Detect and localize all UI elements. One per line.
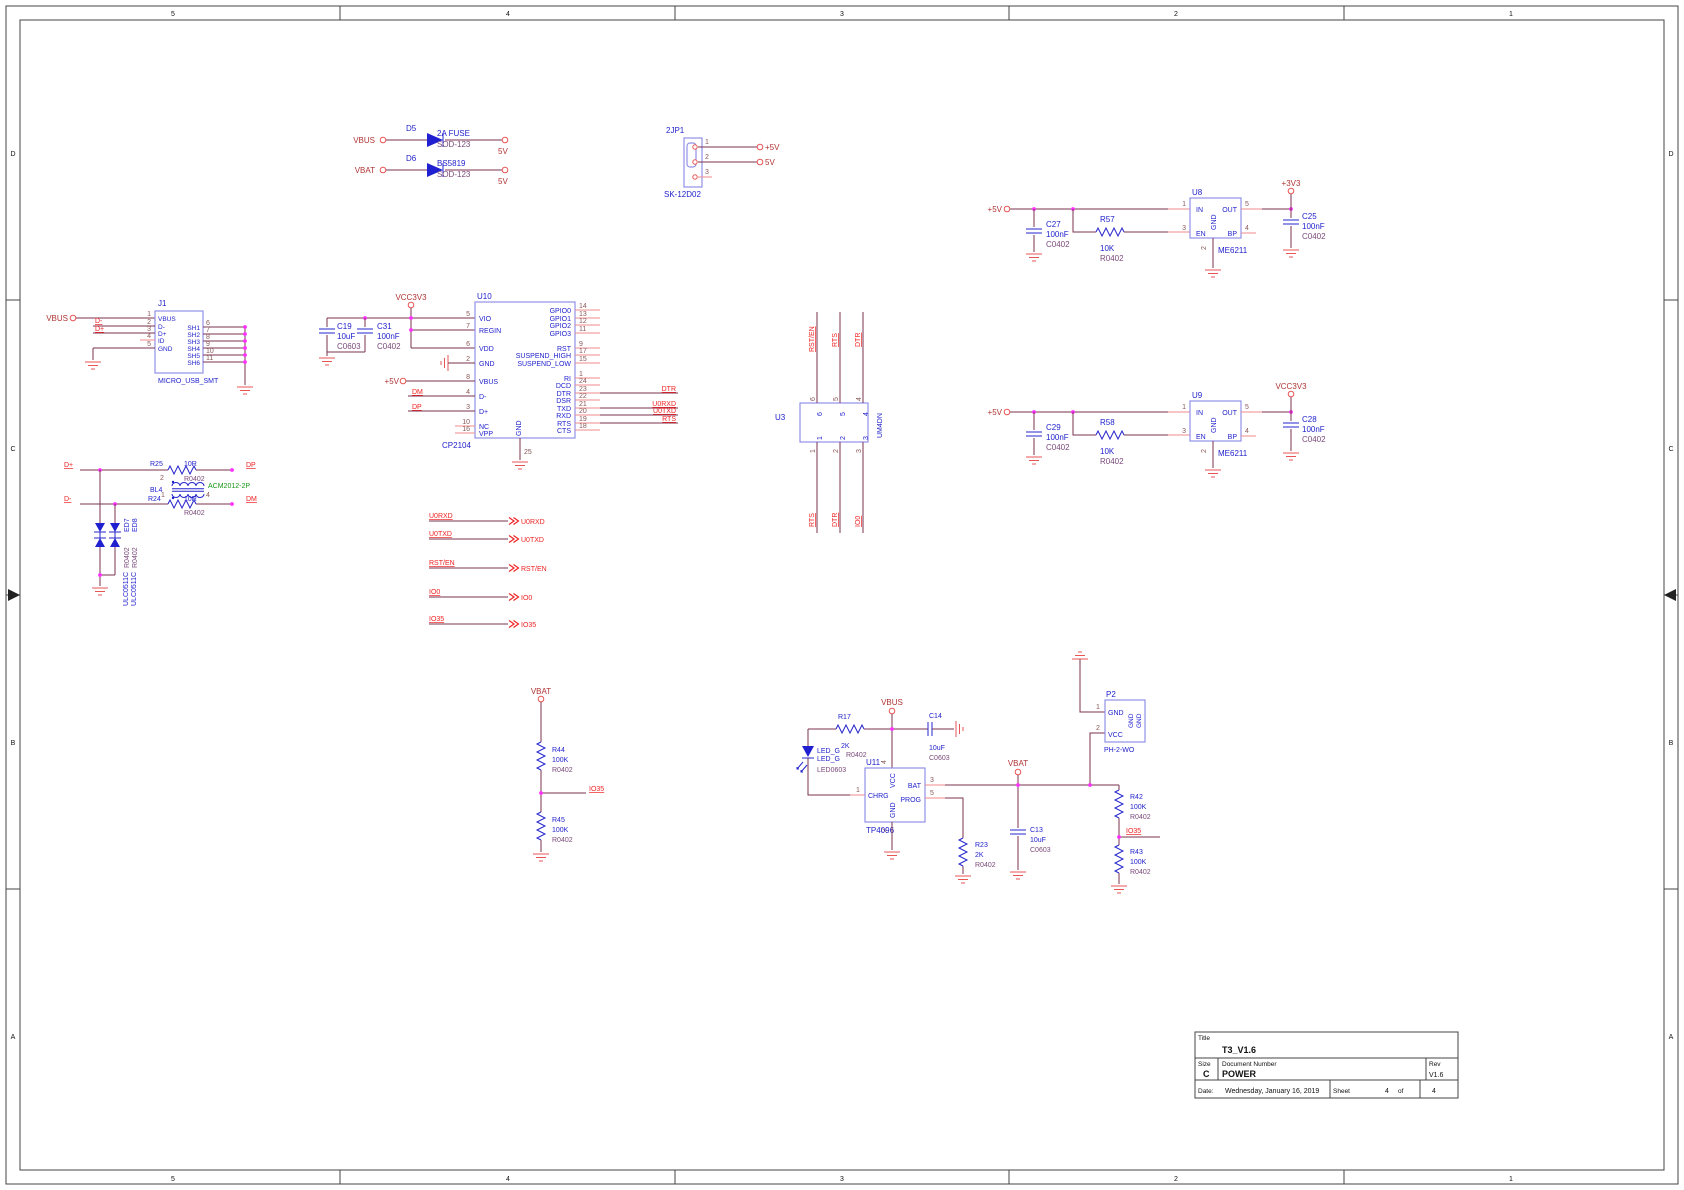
zone-col: 1 <box>1509 11 1513 18</box>
cap-c13 <box>1010 830 1026 834</box>
connector-p2: P2 1 2 GND VCC GND GND PH-2-WO <box>1072 652 1145 787</box>
ed7-footprint: R0402 <box>124 547 131 568</box>
u11-ref: U11 <box>866 758 881 767</box>
ed7-ref: ED7 <box>124 518 131 532</box>
r25-pin-number: 2 <box>160 475 164 482</box>
r58-ref: R58 <box>1100 418 1115 427</box>
led-footprint: LED0603 <box>817 767 846 774</box>
schematic-canvas: 5 4 3 2 1 5 4 3 2 1 D C B A D C B A VBUS… <box>0 0 1684 1190</box>
ed8-ref: ED8 <box>132 518 139 532</box>
u10-pin-name: REGIN <box>479 328 501 335</box>
u8-pin-bp: BP <box>1228 231 1238 238</box>
u3-ref: U3 <box>775 413 786 422</box>
r17-footprint: R0402 <box>846 752 867 759</box>
u10-pin-number: 11 <box>579 326 586 333</box>
u9-pin4-number: 4 <box>1245 428 1249 435</box>
c19-value: 10uF <box>337 332 355 341</box>
u9-pin-bp: BP <box>1228 434 1238 441</box>
resistor-r43 <box>1115 845 1123 873</box>
u3-pin-number: 6 <box>810 397 817 401</box>
u9-pin2-number: 2 <box>1201 449 1208 453</box>
net-label-dminus: D- <box>64 496 72 503</box>
u10-part: CP2104 <box>442 441 471 450</box>
titleblock-doc-label: Document Number <box>1222 1061 1277 1068</box>
u10-pin-number: 24 <box>579 378 587 385</box>
titleblock-date-label: Date: <box>1198 1088 1214 1095</box>
u10-net-vcc3v3: VCC3V3 <box>395 293 427 302</box>
j1-port-vbus: VBUS <box>46 314 68 323</box>
u10-pin-number: 2 <box>466 356 470 363</box>
r45-ref: R45 <box>552 817 565 824</box>
led-ref: LED_G <box>817 748 840 755</box>
net-label-5v: 5V <box>498 177 508 186</box>
title-block: Title T3_V1.6 Size C Document Number POW… <box>1195 1032 1458 1098</box>
u10-pin-name: RI <box>564 376 571 383</box>
schematic-sheet: 5 4 3 2 1 5 4 3 2 1 D C B A D C B A VBUS… <box>0 0 1684 1190</box>
u11-pin5-number: 5 <box>930 790 934 797</box>
d5-value: 2A FUSE <box>437 129 470 138</box>
j1-sh-name: SH1 <box>187 325 200 332</box>
c19-ref: C19 <box>337 322 352 331</box>
bl4-pin1-number: 1 <box>161 492 165 499</box>
net-label-dplus: D+ <box>95 326 104 333</box>
c13-ref: C13 <box>1030 827 1043 834</box>
net-label-rst-en: RST/EN <box>809 326 816 352</box>
u3-pin-name: 3 <box>863 436 870 440</box>
jp1-ref: 2JP1 <box>666 126 685 135</box>
p2-pin-gnd: GND <box>1108 710 1124 717</box>
u10-pin-number: 23 <box>579 386 587 393</box>
u9-pin-out: OUT <box>1222 410 1238 417</box>
net-label-vbat: VBAT <box>1008 759 1028 768</box>
u9-net-in: +5V <box>988 408 1003 417</box>
zone-col: 4 <box>506 1176 510 1183</box>
j1-sh-name: SH4 <box>187 346 200 353</box>
sheet-frame: 5 4 3 2 1 5 4 3 2 1 D C B A D C B A <box>6 6 1678 1184</box>
net-label-dminus: D- <box>95 318 103 325</box>
u10-net-5v: +5V <box>385 377 400 386</box>
u10-pin-name: GND <box>479 361 495 368</box>
p2-footprint: PH-2-WO <box>1104 747 1135 754</box>
net-label-io35: IO35 <box>1126 828 1141 835</box>
u10-pin-name: CTS <box>557 428 571 435</box>
p2-pin-vcc: VCC <box>1108 732 1123 739</box>
u3-part: UM4DN <box>877 413 884 438</box>
net-label-vbat: VBAT <box>355 166 375 175</box>
r24-ref: R24 <box>148 496 161 503</box>
j1-pin-name: D- <box>158 324 165 331</box>
u11-pin-gnd: GND <box>890 802 897 818</box>
resistor-r42 <box>1115 790 1123 818</box>
u8-net-in: +5V <box>988 205 1003 214</box>
u9-pin3-number: 3 <box>1182 428 1186 435</box>
titleblock-rev: V1.6 <box>1429 1072 1444 1079</box>
u11-pin3-number: 3 <box>930 777 934 784</box>
r24-footprint: R0402 <box>184 510 205 517</box>
u10-pin-name: VDD <box>479 346 494 353</box>
frame-left-arrow-icon <box>8 589 20 601</box>
c31-value: 100nF <box>377 332 400 341</box>
u11-pin1-number: 1 <box>856 787 860 794</box>
bl4-pin4-number: 4 <box>206 492 210 499</box>
u8-pin-in: IN <box>1196 207 1203 214</box>
u10-pin-number: 7 <box>466 323 470 330</box>
p2-pin1-number: 1 <box>1096 704 1100 711</box>
offpage-ref: RST/EN <box>521 566 547 573</box>
jp1-footprint: SK-12D02 <box>664 190 701 199</box>
net-label-rts: RTS <box>832 333 839 347</box>
r57-footprint: R0402 <box>1100 254 1124 263</box>
jp1-pin3-number: 3 <box>705 169 709 176</box>
connector-j1-microusb: VBUS J1 D- D+ 1 2 3 4 5 VBUS D- D+ ID GN… <box>46 299 253 394</box>
u8-pin4-number: 4 <box>1245 225 1249 232</box>
u8-pin-gnd: GND <box>1211 214 1218 230</box>
u8-pin5-number: 5 <box>1245 201 1249 208</box>
offpage-ref: U0TXD <box>521 537 544 544</box>
u10-pin-number: 19 <box>579 416 587 423</box>
u8-pin2-number: 2 <box>1201 246 1208 250</box>
net-label-5v: 5V <box>498 147 508 156</box>
ic-u3-um4dn: U3 RST/EN RTS DTR 6 5 4 6 5 4 1 2 3 1 2 … <box>775 312 884 533</box>
ic-u10-cp2104: VCC3V3 C19 10uF C0603 C31 100nF C0402 U1… <box>319 292 678 469</box>
net-label-5v: 5V <box>765 158 775 167</box>
u10-pin-number: 1 <box>579 371 583 378</box>
c28-footprint: C0402 <box>1302 435 1326 444</box>
zone-col: 5 <box>171 1176 175 1183</box>
u3-pin-name: 5 <box>840 412 847 416</box>
gnd-symbol-up <box>1072 652 1088 659</box>
net-label-dtr: DTR <box>855 333 862 347</box>
r44-footprint: R0402 <box>552 767 573 774</box>
u3-pin-number: 1 <box>810 449 817 453</box>
led-value: LED_G <box>817 756 840 763</box>
j1-pin-name: ID <box>158 338 165 345</box>
j1-sh-number: 11 <box>206 355 213 362</box>
u10-pin-name: GPIO2 <box>550 323 572 330</box>
j1-pin-name: VBUS <box>158 316 176 323</box>
r45-value: 100K <box>552 827 569 834</box>
usb-filter-network: D+ R25 10R R0402 2 D- R24 10R R0402 BL4 … <box>64 461 257 606</box>
zone-col: 3 <box>840 11 844 18</box>
r25-ref: R25 <box>150 461 163 468</box>
u8-ref: U8 <box>1192 188 1203 197</box>
net-label: U0RXD <box>429 513 453 520</box>
c14-footprint: C0603 <box>929 755 950 762</box>
net-label-rts: RTS <box>662 416 676 423</box>
u10-pin-gnd-bottom: GND <box>516 420 523 436</box>
ed7-part: ULC0511C <box>123 572 130 606</box>
net-label-io0: IO0 <box>855 516 862 527</box>
u10-pin-number: 13 <box>579 311 587 318</box>
u10-pin-number: 9 <box>579 341 583 348</box>
net-label-rts: RTS <box>809 513 816 527</box>
c25-footprint: C0402 <box>1302 232 1326 241</box>
r58-value: 10K <box>1100 447 1115 456</box>
net-label-vbus: VBUS <box>881 698 903 707</box>
c27-footprint: C0402 <box>1046 240 1070 249</box>
u3-pin-number: 4 <box>856 397 863 401</box>
u10-pin-name: DCD <box>556 383 571 390</box>
p2-side-gnd: GND <box>1128 713 1135 728</box>
r42-ref: R42 <box>1130 794 1143 801</box>
zone-col: 4 <box>506 11 510 18</box>
net-label-dtr: DTR <box>662 386 676 393</box>
titleblock-title: T3_V1.6 <box>1222 1045 1256 1055</box>
resistor-r57 <box>1096 228 1124 236</box>
titleblock-doc: POWER <box>1222 1069 1257 1079</box>
c31-footprint: C0402 <box>377 342 401 351</box>
net-label-vbus: VBUS <box>353 136 375 145</box>
u10-pin-number: 18 <box>579 423 587 430</box>
j1-ref: J1 <box>158 299 167 308</box>
p2-side-gnd: GND <box>1136 713 1143 728</box>
bl4-part: ACM2012-2P <box>208 483 250 490</box>
r25-value: 10R <box>184 461 197 468</box>
net-label-u0txd: U0TXD <box>653 408 676 415</box>
j1-footprint: MICRO_USB_SMT <box>158 378 219 385</box>
u10-pin-name: GPIO3 <box>550 331 572 338</box>
j1-sh-number: 7 <box>206 327 210 334</box>
j1-pin-number: 5 <box>147 341 151 348</box>
c27-value: 100nF <box>1046 230 1069 239</box>
u8-part: ME6211 <box>1218 246 1248 255</box>
titleblock-sheet: 4 <box>1385 1088 1389 1095</box>
u11-pin-bat: BAT <box>908 783 922 790</box>
zone-row: C <box>10 446 15 453</box>
jp1-pin1-number: 1 <box>705 139 709 146</box>
d5-ref: D5 <box>406 124 417 133</box>
u10-pin-name: RXD <box>556 413 571 420</box>
net-label: U0TXD <box>429 531 452 538</box>
titleblock-sheet-label: Sheet <box>1333 1088 1350 1095</box>
offpage-ref: IO35 <box>521 622 536 629</box>
titleblock-date: Wednesday, January 16, 2019 <box>1225 1088 1319 1095</box>
p2-ref: P2 <box>1106 690 1116 699</box>
net-label-dtr: DTR <box>832 513 839 527</box>
r23-ref: R23 <box>975 842 988 849</box>
u9-pin-gnd: GND <box>1211 417 1218 433</box>
regulator-u9: +5V C29 100nF C0402 R58 10K R0402 U9 IN … <box>988 382 1327 477</box>
zone-row: B <box>1669 740 1674 747</box>
u10-pin-number: 6 <box>466 341 470 348</box>
ed8-part: ULC0511C <box>131 572 138 606</box>
u11-pin-prog: PROG <box>900 797 921 804</box>
power-input-diodes: VBUS D5 2A FUSE SOD-123 5V VBAT D6 BS581… <box>353 124 508 186</box>
u10-pin-name: VPP <box>479 431 493 438</box>
resistor-r45 <box>537 812 545 840</box>
u10-pin-number: 21 <box>579 401 587 408</box>
r42-value: 100K <box>1130 804 1147 811</box>
j1-sh-name: SH6 <box>187 360 200 367</box>
j1-sh-name: SH2 <box>187 332 200 339</box>
j1-pin-number: 1 <box>147 311 151 318</box>
c29-value: 100nF <box>1046 433 1069 442</box>
r23-value: 2K <box>975 852 984 859</box>
net-label-dp: DP <box>412 404 422 411</box>
c31-ref: C31 <box>377 322 392 331</box>
u10-pin-name: NC <box>479 424 489 431</box>
c13-value: 10uF <box>1030 837 1046 844</box>
u10-pin-name: DSR <box>556 398 571 405</box>
u10-pin-name: SUSPEND_HIGH <box>516 353 571 360</box>
c29-ref: C29 <box>1046 423 1061 432</box>
d6-ref: D6 <box>406 154 417 163</box>
u10-pin-number: 17 <box>579 348 587 355</box>
u10-pin-name: VIO <box>479 316 492 323</box>
offpage-ref: IO0 <box>521 595 532 602</box>
r45-footprint: R0402 <box>552 837 573 844</box>
u9-pin-en: EN <box>1196 434 1206 441</box>
c25-value: 100nF <box>1302 222 1325 231</box>
u8-net-out: +3V3 <box>1282 179 1301 188</box>
resistor-r58 <box>1096 431 1124 439</box>
u10-pin-name: RTS <box>557 421 571 428</box>
tvs-diode-ed7 <box>94 523 106 547</box>
u10-pin-number: 8 <box>466 374 470 381</box>
titleblock-title-label: Title <box>1198 1035 1210 1042</box>
u10-pin-name: GPIO1 <box>550 316 572 323</box>
net-label: IO35 <box>429 616 444 623</box>
u10-pin-name: D+ <box>479 409 488 416</box>
zone-col: 2 <box>1174 11 1178 18</box>
r57-ref: R57 <box>1100 215 1115 224</box>
r43-ref: R43 <box>1130 849 1143 856</box>
c28-ref: C28 <box>1302 415 1317 424</box>
c14-value: 10uF <box>929 745 945 752</box>
titleblock-of: of <box>1398 1088 1404 1095</box>
resistor-r17 <box>836 725 864 733</box>
p2-pin2-number: 2 <box>1096 725 1100 732</box>
j1-pin-name: D+ <box>158 331 167 338</box>
offpage-ref: U0RXD <box>521 519 545 526</box>
titleblock-size: C <box>1203 1069 1210 1079</box>
u10-pin-number: 4 <box>466 389 470 396</box>
u10-pin-number: 12 <box>579 318 587 325</box>
j1-pin-number: 2 <box>147 319 151 326</box>
cap-c14 <box>928 721 963 737</box>
regulator-u8: +5V C27 100nF C0402 R57 10K R0402 U8 IN … <box>988 179 1327 277</box>
u9-net-out: VCC3V3 <box>1275 382 1307 391</box>
j1-sh-number: 6 <box>206 320 210 327</box>
r23-footprint: R0402 <box>975 862 996 869</box>
zone-row: C <box>1668 446 1673 453</box>
zone-col: 5 <box>171 11 175 18</box>
u3-pin-name: 1 <box>817 436 824 440</box>
j1-sh-name: SH3 <box>187 339 200 346</box>
u11-pin-chrg: CHRG <box>868 793 889 800</box>
u10-pin25-number: 25 <box>524 449 532 456</box>
j1-sh-number: 8 <box>206 334 210 341</box>
r17-ref: R17 <box>838 714 851 721</box>
j1-sh-name: SH5 <box>187 353 200 360</box>
net-label-dm: DM <box>246 496 257 503</box>
net-label-dp: DP <box>246 462 256 469</box>
r44-ref: R44 <box>552 747 565 754</box>
titleblock-rev-label: Rev <box>1429 1061 1441 1068</box>
net-label-plus5v: +5V <box>765 143 780 152</box>
net-label-io35: IO35 <box>589 786 604 793</box>
u3-pin-name: 2 <box>840 436 847 440</box>
u10-pin-number: 15 <box>579 356 587 363</box>
u8-pin-out: OUT <box>1222 207 1238 214</box>
zone-row: D <box>1668 151 1673 158</box>
gnd-symbol-rot <box>441 355 448 371</box>
r42-footprint: R0402 <box>1130 814 1151 821</box>
zone-col: 2 <box>1174 1176 1178 1183</box>
c13-footprint: C0603 <box>1030 847 1051 854</box>
u8-pin1-number: 1 <box>1182 201 1186 208</box>
u10-pin-name: D- <box>479 394 487 401</box>
r57-value: 10K <box>1100 244 1115 253</box>
zone-row: A <box>1669 1034 1674 1041</box>
u3-pin-number: 2 <box>833 449 840 453</box>
net-label-dplus: D+ <box>64 462 73 469</box>
ed8-footprint: R0402 <box>132 547 139 568</box>
c29-footprint: C0402 <box>1046 443 1070 452</box>
c19-footprint: C0603 <box>337 342 361 351</box>
u10-pin-name: DTR <box>557 391 571 398</box>
u11-pin-vcc: VCC <box>890 773 897 788</box>
u10-pin-number: 10 <box>462 419 470 426</box>
r58-footprint: R0402 <box>1100 457 1124 466</box>
u8-pin-en: EN <box>1196 231 1206 238</box>
u9-pin1-number: 1 <box>1182 404 1186 411</box>
u9-pin5-number: 5 <box>1245 404 1249 411</box>
vbat-divider: VBAT R44 100K R0402 IO35 R45 100K R0402 <box>531 687 604 861</box>
u10-pin-name: VBUS <box>479 379 498 386</box>
u8-pin3-number: 3 <box>1182 225 1186 232</box>
u10-pin-number: 22 <box>579 393 587 400</box>
net-label-u0rxd: U0RXD <box>652 401 676 408</box>
r43-value: 100K <box>1130 859 1147 866</box>
r44-value: 100K <box>552 757 569 764</box>
titleblock-total: 4 <box>1432 1088 1436 1095</box>
u3-pin-name: 4 <box>863 412 870 416</box>
u11-part: TP4096 <box>866 826 895 835</box>
u9-pin-in: IN <box>1196 410 1203 417</box>
u10-ref: U10 <box>477 292 492 301</box>
u10-pin-number: 14 <box>579 303 587 310</box>
j1-sh-number: 9 <box>206 341 210 348</box>
frame-right-arrow-icon <box>1664 589 1676 601</box>
u10-pin-name: TXD <box>557 406 571 413</box>
c28-value: 100nF <box>1302 425 1325 434</box>
net-label-dm: DM <box>412 389 423 396</box>
u11-pin4-number: 4 <box>881 760 888 764</box>
j1-pin-name: GND <box>158 346 173 353</box>
u9-part: ME6211 <box>1218 449 1248 458</box>
connector-2jp1: 2JP1 1 2 3 +5V 5V SK-12D02 <box>664 126 780 199</box>
j1-sh-number: 10 <box>206 348 214 355</box>
c27-ref: C27 <box>1046 220 1061 229</box>
u10-pin-number: 20 <box>579 408 587 415</box>
net-label: RST/EN <box>429 560 455 567</box>
u10-pin-number: 3 <box>466 404 470 411</box>
u3-pin-number: 3 <box>856 449 863 453</box>
u10-pin-number: 16 <box>462 426 470 433</box>
j1-pin-number: 4 <box>147 333 151 340</box>
u3-pin-name: 6 <box>817 412 824 416</box>
d6-footprint: SOD-123 <box>437 170 471 179</box>
titleblock-size-label: Size <box>1198 1061 1211 1068</box>
zone-row: D <box>10 151 15 158</box>
u3-pin-number: 5 <box>833 397 840 401</box>
resistor-r23 <box>959 838 967 866</box>
r25-footprint: R0402 <box>184 476 205 483</box>
j1-pin-number: 3 <box>147 326 151 333</box>
resistor-r44 <box>537 742 545 770</box>
zone-col: 1 <box>1509 1176 1513 1183</box>
